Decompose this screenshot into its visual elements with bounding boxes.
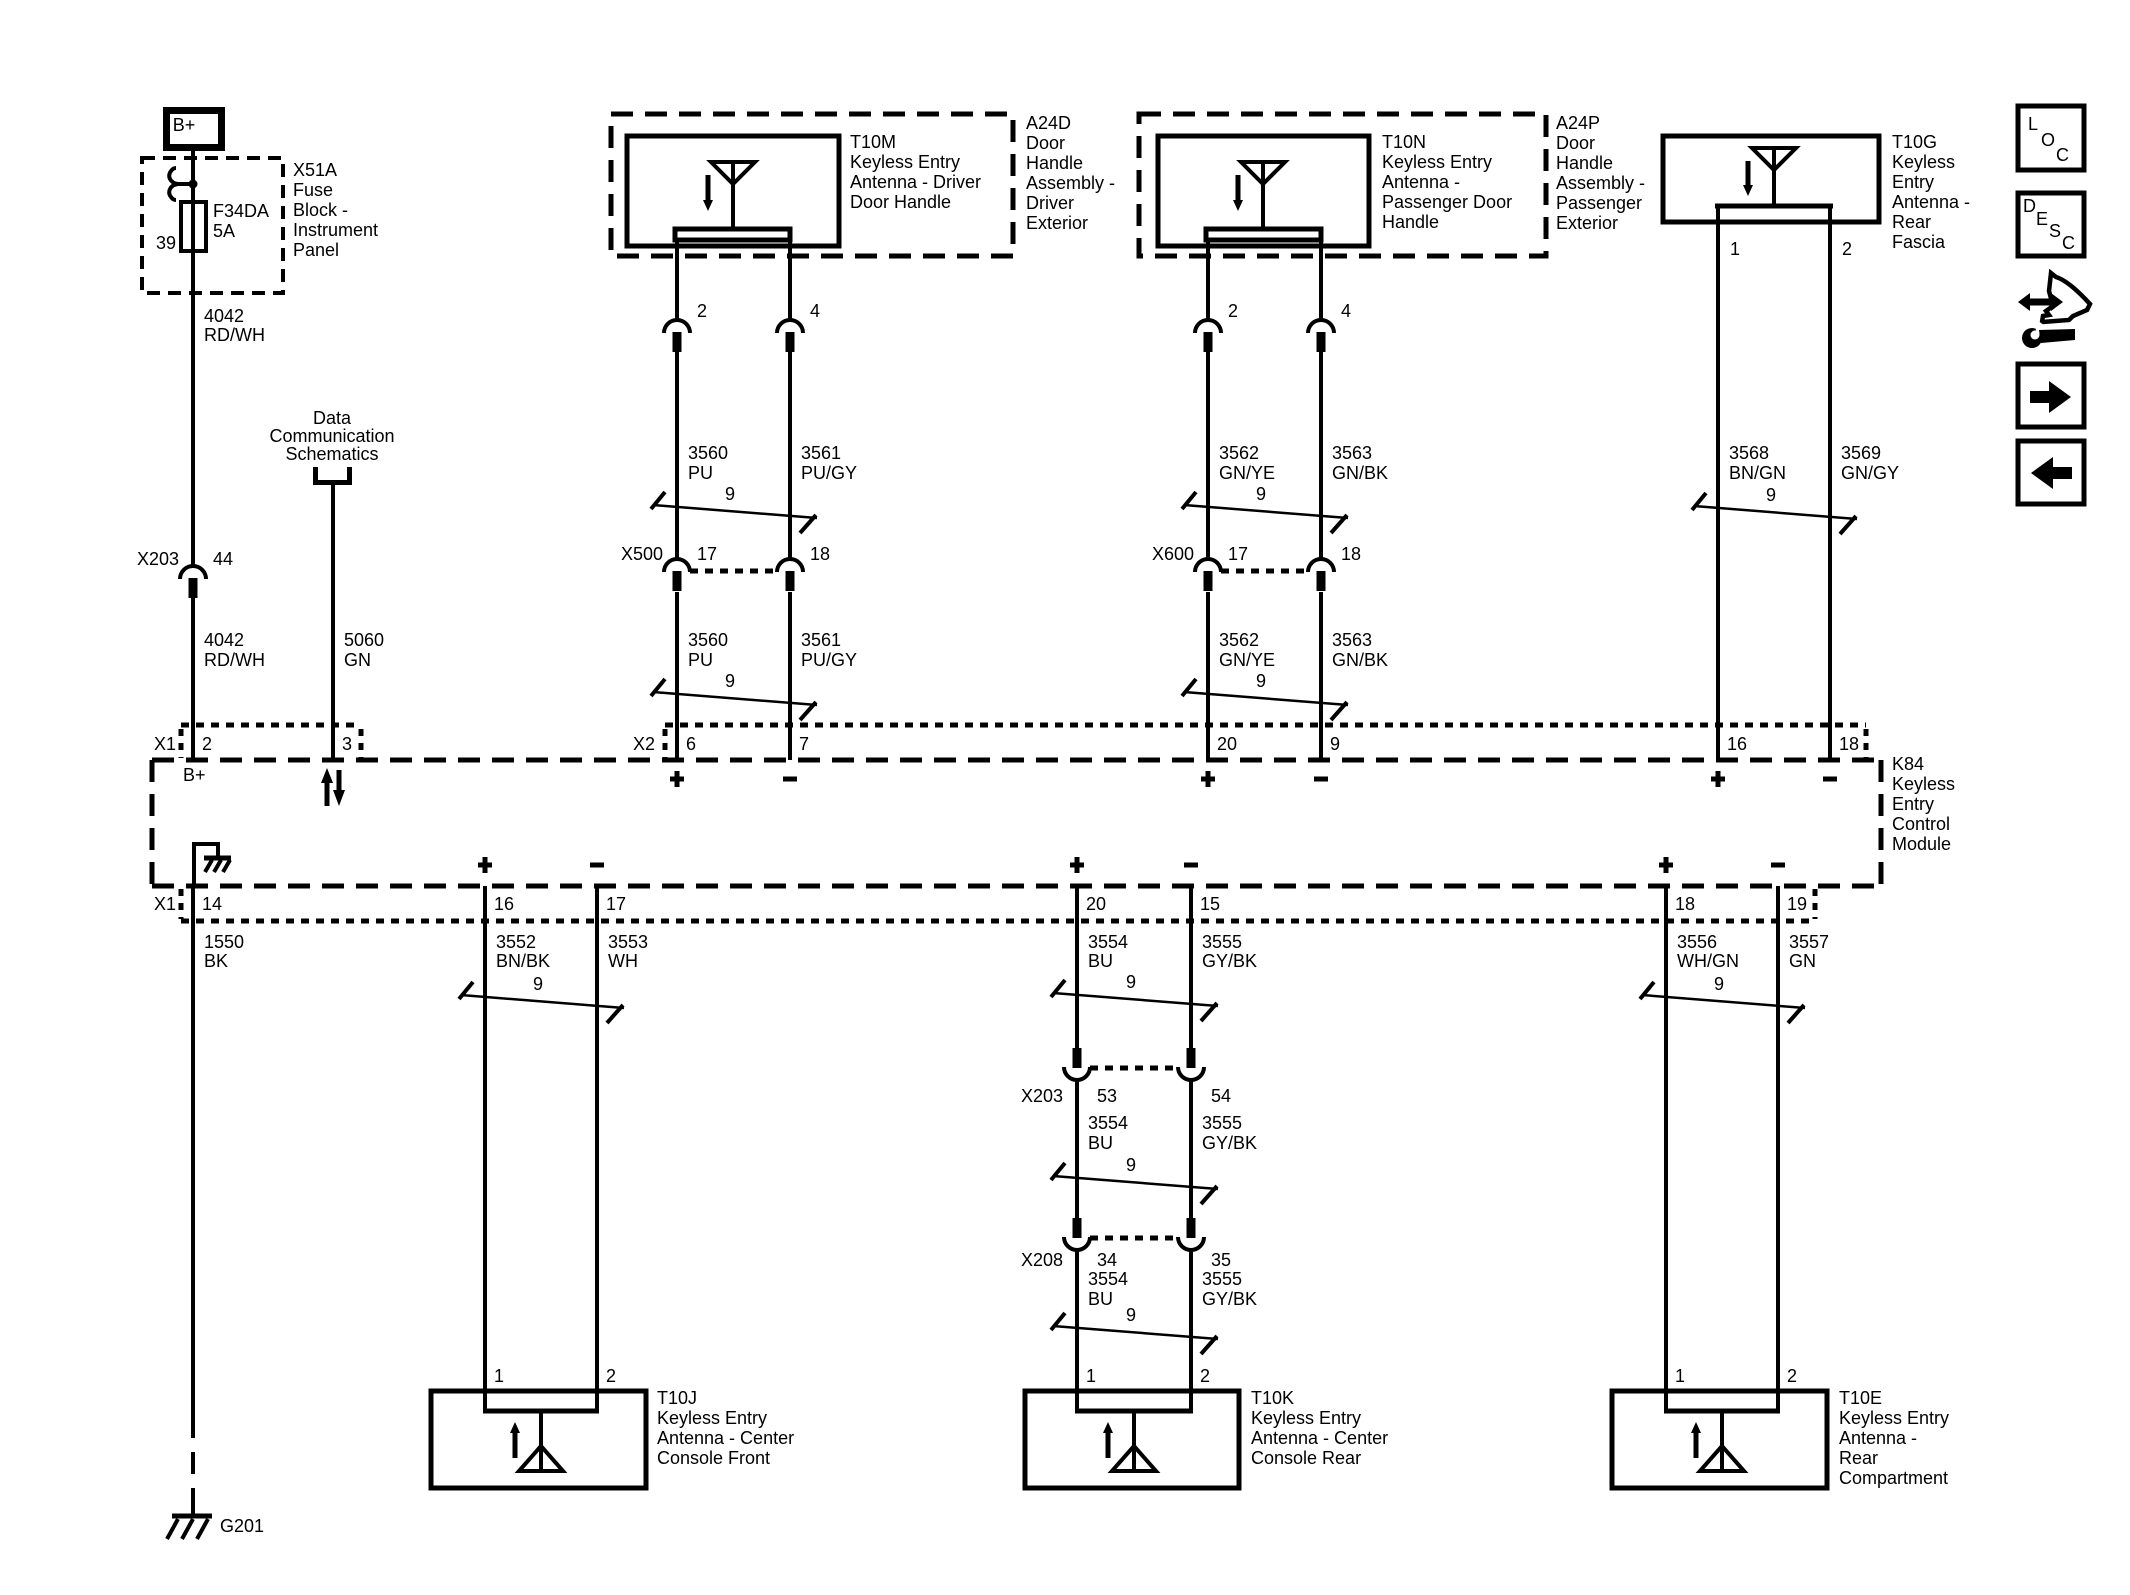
svg-text:B+: B+ bbox=[173, 115, 196, 135]
svg-text:9: 9 bbox=[1126, 1305, 1136, 1325]
svg-text:Keyless: Keyless bbox=[1892, 152, 1955, 172]
svg-text:WH/GN: WH/GN bbox=[1677, 951, 1739, 971]
svg-text:4042: 4042 bbox=[204, 630, 244, 650]
svg-text:K84: K84 bbox=[1892, 754, 1924, 774]
svg-text:Handle: Handle bbox=[1382, 212, 1439, 232]
svg-text:3554: 3554 bbox=[1088, 1269, 1128, 1289]
svg-text:1: 1 bbox=[494, 1366, 504, 1386]
svg-text:4: 4 bbox=[810, 301, 820, 321]
svg-text:Keyless Entry: Keyless Entry bbox=[1382, 152, 1492, 172]
svg-text:Assembly -: Assembly - bbox=[1556, 173, 1645, 193]
svg-text:17: 17 bbox=[697, 544, 717, 564]
svg-text:PU/GY: PU/GY bbox=[801, 463, 857, 483]
svg-text:3554: 3554 bbox=[1088, 1113, 1128, 1133]
svg-text:X51A: X51A bbox=[293, 160, 337, 180]
svg-text:3562: 3562 bbox=[1219, 443, 1259, 463]
svg-text:Antenna -: Antenna - bbox=[1892, 192, 1970, 212]
svg-text:3562: 3562 bbox=[1219, 630, 1259, 650]
svg-text:T10J: T10J bbox=[657, 1388, 697, 1408]
svg-text:BU: BU bbox=[1088, 951, 1113, 971]
svg-text:17: 17 bbox=[606, 894, 626, 914]
svg-text:18: 18 bbox=[1675, 894, 1695, 914]
svg-text:3569: 3569 bbox=[1841, 443, 1881, 463]
svg-text:Compartment: Compartment bbox=[1839, 1468, 1948, 1488]
svg-text:GN/BK: GN/BK bbox=[1332, 463, 1388, 483]
svg-text:4042: 4042 bbox=[204, 306, 244, 326]
svg-text:Exterior: Exterior bbox=[1026, 213, 1088, 233]
svg-text:2: 2 bbox=[202, 734, 212, 754]
svg-text:Passenger: Passenger bbox=[1556, 193, 1642, 213]
svg-text:Keyless Entry: Keyless Entry bbox=[657, 1408, 767, 1428]
svg-text:Passenger Door: Passenger Door bbox=[1382, 192, 1512, 212]
svg-text:X203: X203 bbox=[1021, 1086, 1063, 1106]
svg-text:2: 2 bbox=[1842, 239, 1852, 259]
svg-text:GY/BK: GY/BK bbox=[1202, 951, 1257, 971]
svg-text:X1: X1 bbox=[154, 734, 176, 754]
svg-text:Handle: Handle bbox=[1026, 153, 1083, 173]
svg-text:GY/BK: GY/BK bbox=[1202, 1133, 1257, 1153]
svg-text:1: 1 bbox=[1675, 1366, 1685, 1386]
svg-text:X203: X203 bbox=[137, 549, 179, 569]
svg-text:16: 16 bbox=[1727, 734, 1747, 754]
svg-text:PU/GY: PU/GY bbox=[801, 650, 857, 670]
svg-text:3556: 3556 bbox=[1677, 932, 1717, 952]
svg-text:Keyless Entry: Keyless Entry bbox=[1251, 1408, 1361, 1428]
svg-text:2: 2 bbox=[606, 1366, 616, 1386]
svg-text:Block -: Block - bbox=[293, 200, 348, 220]
svg-text:9: 9 bbox=[725, 484, 735, 504]
svg-text:35: 35 bbox=[1211, 1250, 1231, 1270]
svg-text:Fascia: Fascia bbox=[1892, 232, 1946, 252]
svg-text:9: 9 bbox=[533, 974, 543, 994]
svg-text:19: 19 bbox=[1787, 894, 1807, 914]
svg-text:18: 18 bbox=[1341, 544, 1361, 564]
svg-text:18: 18 bbox=[1839, 734, 1859, 754]
svg-text:1: 1 bbox=[1086, 1366, 1096, 1386]
svg-text:3552: 3552 bbox=[496, 932, 536, 952]
svg-text:15: 15 bbox=[1200, 894, 1220, 914]
svg-text:Exterior: Exterior bbox=[1556, 213, 1618, 233]
svg-text:GN/GY: GN/GY bbox=[1841, 463, 1899, 483]
svg-text:Console Front: Console Front bbox=[657, 1448, 770, 1468]
svg-text:53: 53 bbox=[1097, 1086, 1117, 1106]
svg-text:5A: 5A bbox=[213, 221, 235, 241]
svg-text:Control: Control bbox=[1892, 814, 1950, 834]
svg-text:X500: X500 bbox=[621, 544, 663, 564]
svg-text:4: 4 bbox=[1341, 301, 1351, 321]
svg-text:Entry: Entry bbox=[1892, 794, 1934, 814]
svg-text:9: 9 bbox=[1766, 485, 1776, 505]
svg-text:9: 9 bbox=[1714, 974, 1724, 994]
svg-text:9: 9 bbox=[725, 671, 735, 691]
svg-text:39: 39 bbox=[156, 233, 176, 253]
svg-text:T10N: T10N bbox=[1382, 132, 1426, 152]
svg-text:Antenna - Center: Antenna - Center bbox=[657, 1428, 794, 1448]
svg-text:F34DA: F34DA bbox=[213, 201, 269, 221]
svg-text:9: 9 bbox=[1126, 972, 1136, 992]
svg-text:Door: Door bbox=[1026, 133, 1065, 153]
svg-text:3568: 3568 bbox=[1729, 443, 1769, 463]
svg-text:1: 1 bbox=[1730, 239, 1740, 259]
svg-text:Antenna -: Antenna - bbox=[1382, 172, 1460, 192]
svg-text:S: S bbox=[2049, 221, 2061, 241]
svg-text:3555: 3555 bbox=[1202, 1113, 1242, 1133]
svg-text:Antenna -: Antenna - bbox=[1839, 1428, 1917, 1448]
svg-text:GN/YE: GN/YE bbox=[1219, 463, 1275, 483]
svg-text:L: L bbox=[2028, 114, 2038, 134]
svg-text:Fuse: Fuse bbox=[293, 180, 333, 200]
svg-text:Module: Module bbox=[1892, 834, 1951, 854]
svg-text:Keyless Entry: Keyless Entry bbox=[850, 152, 960, 172]
svg-text:BN/GN: BN/GN bbox=[1729, 463, 1786, 483]
svg-text:T10M: T10M bbox=[850, 132, 896, 152]
svg-text:A24D: A24D bbox=[1026, 113, 1071, 133]
svg-text:Assembly -: Assembly - bbox=[1026, 173, 1115, 193]
svg-text:Instrument: Instrument bbox=[293, 220, 378, 240]
svg-text:Entry: Entry bbox=[1892, 172, 1934, 192]
svg-text:9: 9 bbox=[1126, 1155, 1136, 1175]
svg-text:2: 2 bbox=[1200, 1366, 1210, 1386]
svg-text:B+: B+ bbox=[183, 765, 206, 785]
svg-text:BU: BU bbox=[1088, 1289, 1113, 1309]
svg-text:Antenna - Driver: Antenna - Driver bbox=[850, 172, 981, 192]
svg-text:18: 18 bbox=[810, 544, 830, 564]
svg-text:6: 6 bbox=[686, 734, 696, 754]
svg-text:Rear: Rear bbox=[1839, 1448, 1878, 1468]
svg-text:Door: Door bbox=[1556, 133, 1595, 153]
svg-text:G201: G201 bbox=[220, 1516, 264, 1536]
svg-text:Antenna - Center: Antenna - Center bbox=[1251, 1428, 1388, 1448]
svg-text:BK: BK bbox=[204, 951, 228, 971]
svg-text:E: E bbox=[2036, 209, 2048, 229]
svg-text:RD/WH: RD/WH bbox=[204, 325, 265, 345]
svg-text:Rear: Rear bbox=[1892, 212, 1931, 232]
svg-text:3563: 3563 bbox=[1332, 630, 1372, 650]
svg-text:T10G: T10G bbox=[1892, 132, 1937, 152]
svg-text:PU: PU bbox=[688, 463, 713, 483]
svg-text:RD/WH: RD/WH bbox=[204, 650, 265, 670]
svg-text:C: C bbox=[2062, 233, 2075, 253]
svg-text:GN/YE: GN/YE bbox=[1219, 650, 1275, 670]
svg-text:14: 14 bbox=[202, 894, 222, 914]
svg-text:Data: Data bbox=[313, 408, 352, 428]
svg-text:T10K: T10K bbox=[1251, 1388, 1294, 1408]
svg-text:X2: X2 bbox=[633, 734, 655, 754]
svg-text:2: 2 bbox=[697, 301, 707, 321]
svg-text:Panel: Panel bbox=[293, 240, 339, 260]
svg-text:WH: WH bbox=[608, 951, 638, 971]
svg-text:C: C bbox=[2056, 145, 2069, 165]
svg-text:Keyless Entry: Keyless Entry bbox=[1839, 1408, 1949, 1428]
svg-text:17: 17 bbox=[1228, 544, 1248, 564]
svg-text:X1: X1 bbox=[154, 894, 176, 914]
svg-text:3561: 3561 bbox=[801, 443, 841, 463]
svg-text:GN: GN bbox=[1789, 951, 1816, 971]
svg-text:1550: 1550 bbox=[204, 932, 244, 952]
svg-text:O: O bbox=[2041, 130, 2055, 150]
svg-text:3554: 3554 bbox=[1088, 932, 1128, 952]
svg-text:PU: PU bbox=[688, 650, 713, 670]
svg-text:2: 2 bbox=[1228, 301, 1238, 321]
svg-text:20: 20 bbox=[1217, 734, 1237, 754]
svg-text:Schematics: Schematics bbox=[285, 444, 378, 464]
svg-text:5060: 5060 bbox=[344, 630, 384, 650]
svg-text:GN/BK: GN/BK bbox=[1332, 650, 1388, 670]
svg-text:16: 16 bbox=[494, 894, 514, 914]
svg-text:Door Handle: Door Handle bbox=[850, 192, 951, 212]
svg-text:GY/BK: GY/BK bbox=[1202, 1289, 1257, 1309]
svg-text:BN/BK: BN/BK bbox=[496, 951, 550, 971]
svg-text:D: D bbox=[2023, 196, 2036, 216]
svg-text:34: 34 bbox=[1097, 1250, 1117, 1270]
svg-text:3561: 3561 bbox=[801, 630, 841, 650]
svg-text:3563: 3563 bbox=[1332, 443, 1372, 463]
svg-text:Handle: Handle bbox=[1556, 153, 1613, 173]
svg-text:A24P: A24P bbox=[1556, 113, 1600, 133]
svg-text:3: 3 bbox=[342, 734, 352, 754]
svg-text:Console Rear: Console Rear bbox=[1251, 1448, 1361, 1468]
svg-text:3560: 3560 bbox=[688, 443, 728, 463]
svg-text:X208: X208 bbox=[1021, 1250, 1063, 1270]
svg-text:20: 20 bbox=[1086, 894, 1106, 914]
svg-text:9: 9 bbox=[1330, 734, 1340, 754]
svg-text:54: 54 bbox=[1211, 1086, 1231, 1106]
svg-text:GN: GN bbox=[344, 650, 371, 670]
svg-text:Keyless: Keyless bbox=[1892, 774, 1955, 794]
svg-text:Communication: Communication bbox=[269, 426, 394, 446]
svg-text:BU: BU bbox=[1088, 1133, 1113, 1153]
svg-text:9: 9 bbox=[1256, 671, 1266, 691]
svg-text:3555: 3555 bbox=[1202, 932, 1242, 952]
svg-text:Driver: Driver bbox=[1026, 193, 1074, 213]
svg-text:44: 44 bbox=[213, 549, 233, 569]
svg-text:X600: X600 bbox=[1152, 544, 1194, 564]
svg-text:T10E: T10E bbox=[1839, 1388, 1882, 1408]
svg-text:3560: 3560 bbox=[688, 630, 728, 650]
svg-text:3557: 3557 bbox=[1789, 932, 1829, 952]
svg-text:3553: 3553 bbox=[608, 932, 648, 952]
svg-text:7: 7 bbox=[799, 734, 809, 754]
svg-text:2: 2 bbox=[1787, 1366, 1797, 1386]
svg-text:3555: 3555 bbox=[1202, 1269, 1242, 1289]
svg-text:9: 9 bbox=[1256, 484, 1266, 504]
